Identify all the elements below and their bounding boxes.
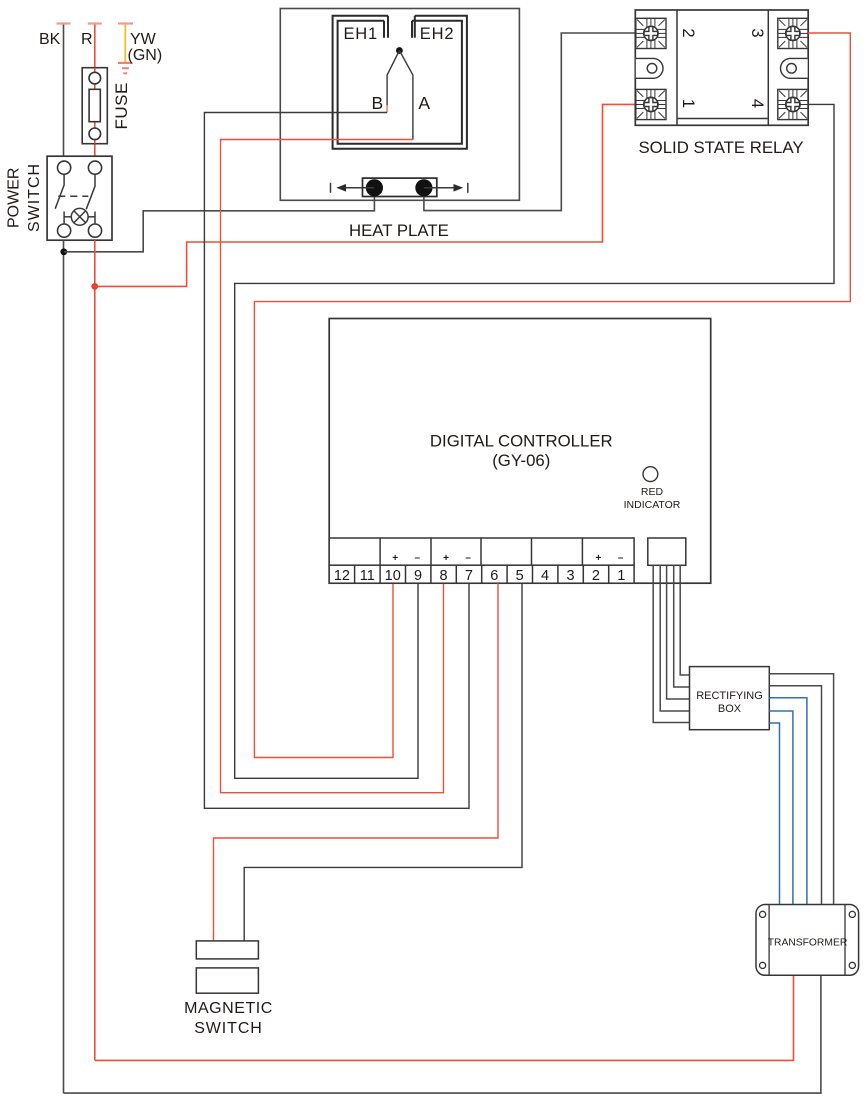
svg-text:+: + [595,553,601,564]
svg-text:3: 3 [566,568,574,584]
svg-text:(GN): (GN) [128,47,163,64]
svg-text:SOLID STATE RELAY: SOLID STATE RELAY [638,138,803,157]
svg-text:2: 2 [679,28,697,37]
svg-text:A: A [418,93,430,113]
svg-text:SWITCH: SWITCH [26,163,43,232]
svg-text:SWITCH: SWITCH [194,1020,263,1037]
svg-text:BOX: BOX [718,703,742,715]
svg-text:6: 6 [490,568,498,584]
svg-text:9: 9 [414,568,422,584]
svg-text:5: 5 [516,568,524,584]
svg-text:11: 11 [360,568,375,584]
svg-text:2: 2 [592,568,600,584]
svg-text:10: 10 [385,568,401,584]
svg-text:1: 1 [617,568,625,584]
svg-text:FUSE: FUSE [112,82,131,129]
svg-text:INDICATOR: INDICATOR [624,499,681,511]
svg-text:YW: YW [130,31,157,48]
svg-text:RED: RED [641,486,664,498]
svg-text:+: + [443,553,449,564]
svg-text:POWER: POWER [6,168,23,228]
svg-text:EH1: EH1 [344,25,379,43]
svg-text:+: + [392,553,398,564]
svg-text:DIGITAL CONTROLLER: DIGITAL CONTROLLER [430,431,613,450]
svg-text:HEAT PLATE: HEAT PLATE [349,221,449,240]
svg-text:12: 12 [334,568,350,584]
svg-text:RECTIFYING: RECTIFYING [696,690,763,702]
svg-text:B: B [372,93,384,113]
svg-text:8: 8 [439,568,447,584]
svg-text:4: 4 [541,568,549,584]
svg-text:EH2: EH2 [420,25,455,43]
svg-text:MAGNETIC: MAGNETIC [184,1000,273,1017]
svg-text:1: 1 [679,99,697,108]
svg-text:3: 3 [748,28,766,37]
svg-text:–: – [465,553,471,564]
svg-text:R: R [81,31,93,48]
svg-text:7: 7 [465,568,473,584]
svg-text:BK: BK [39,31,61,48]
svg-text:–: – [415,553,421,564]
svg-text:–: – [618,553,624,564]
svg-text:4: 4 [748,99,766,108]
svg-text:TRANSFORMER: TRANSFORMER [768,938,848,949]
svg-text:(GY-06): (GY-06) [492,451,550,470]
